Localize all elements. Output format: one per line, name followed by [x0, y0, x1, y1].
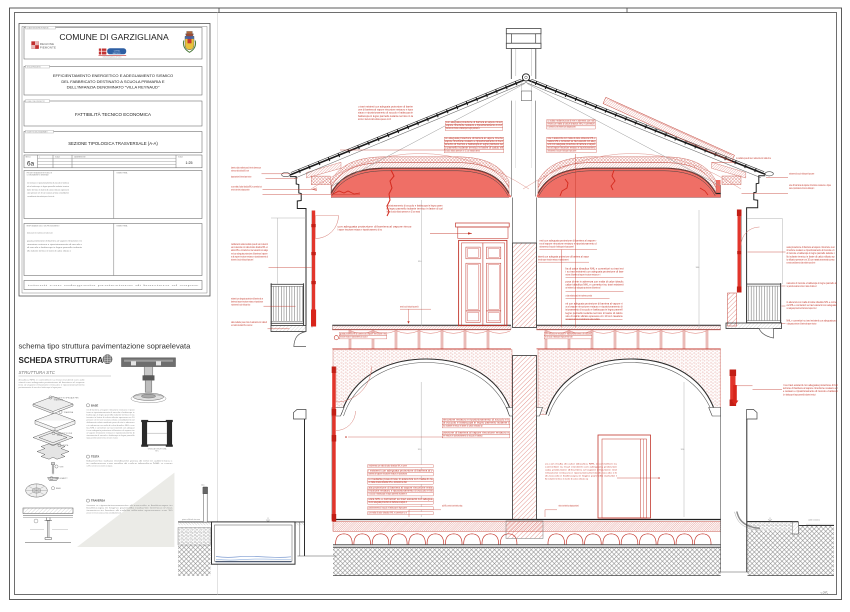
svg-text:namento di zoccolo e battiscop: namento di zoccolo e battiscopa in legno…: [787, 282, 838, 285]
svg-text:otezione di barriera al vapore: otezione di barriera al vapore rimozione…: [443, 432, 510, 435]
svg-text:ne restauro e riposizionamento: ne restauro e riposizionamento di zoccol…: [27, 182, 69, 185]
svg-text:con adeguata protezione di bar: con adeguata protezione di barriera al v…: [787, 307, 818, 310]
svg-text:di zoccolo e battiscopa in leg: di zoccolo e battiscopa in legno pannell…: [545, 475, 618, 478]
svg-text:nti con adeguata protezione di: nti con adeguata protezione di barriera …: [566, 303, 624, 306]
svg-text:calce idraulica NHL e connetto: calce idraulica NHL e connettori su trav…: [566, 284, 625, 287]
svg-text:di calcio silicato spessore cm: di calcio silicato spessore cm 10 con ra…: [445, 149, 480, 152]
svg-text:ca NHL e connettori su travi e: ca NHL e connettori su travi esistenti c…: [787, 304, 838, 307]
svg-text:DEL FABBRICATO DESTINATO: DEL FABBRICATO DESTINATO A SCUOLA PRIMAR…: [61, 79, 165, 84]
svg-text:a con malta di calce idraulica: a con malta di calce idraulica NHL e con…: [231, 324, 253, 327]
svg-text:aulica NHL e connettori su tra: aulica NHL e connettori su travi esisten…: [442, 505, 463, 508]
svg-text:cotile esterno: cotile esterno: [808, 518, 821, 521]
svg-text:ra al vapore rimozione restaur: ra al vapore rimozione restauro e riposi…: [231, 255, 269, 258]
svg-text:rimozione restauro e riposizio: rimozione restauro e riposizionamento di…: [27, 243, 82, 246]
svg-text:cato spessore cm 10 con rasatu: cato spessore cm 10 con rasatura armata …: [27, 192, 69, 195]
svg-text:ezione di barriera al vapore r: ezione di barriera al vapore rimozione r…: [566, 274, 601, 277]
svg-text:posizionamento di zoccolo e ba: posizionamento di zoccolo e battiscopa i…: [387, 205, 444, 208]
svg-text:NHL e connettori su travi esis: NHL e connettori su travi esistenti con …: [787, 320, 838, 323]
svg-text:i zoccolo e battiscopa in legn: i zoccolo e battiscopa in legno pannello…: [369, 493, 408, 496]
svg-text:con adeguata protezione di bar: con adeguata protezione di barriera al v…: [338, 226, 413, 229]
svg-text:renza con malta di calce idrau: renza con malta di calce idraulica NHL e…: [548, 123, 595, 126]
svg-text:a consolidamento solaio median: a consolidamento solaio mediante posa di…: [27, 195, 54, 198]
svg-text:istenti con adeguata protezion: istenti con adeguata protezione di barri…: [538, 256, 589, 259]
svg-text:SCHEDA STRUTTURA: SCHEDA STRUTTURA: [19, 356, 104, 365]
svg-text:lta di calce idraulica NHL e c: lta di calce idraulica NHL e connettori …: [566, 268, 625, 271]
svg-text:DELL'INFANZIA DENOMINATO "VILL: DELL'INFANZIA DENOMINATO "VILLA REYNAUD": [67, 85, 160, 90]
svg-text:ata protezione di barriera al: ata protezione di barriera al vapore rim…: [369, 487, 434, 490]
svg-text:nto di zoccolo e battiscopa in: nto di zoccolo e battiscopa in legno pan…: [545, 336, 573, 339]
svg-text:namento di zoccolo e battiscop: namento di zoccolo e battiscopa in legno…: [400, 306, 419, 309]
svg-text:BASE: BASE: [91, 403, 98, 407]
svg-text:ore rimozione restauro e ripos: ore rimozione restauro e riposizionament…: [545, 333, 592, 336]
svg-text:rimozione restauro e riposizio: rimozione restauro e riposizionamento di…: [545, 472, 618, 475]
svg-text:damento solaio mediante posa d: damento solaio mediante posa di rete in …: [231, 167, 261, 170]
svg-text:EFFICIENTAMENTO ENERGETICO E: EFFICIENTAMENTO ENERGETICO E ADEGUAMENTO…: [53, 73, 173, 78]
svg-text:termico in lastre di calcio si: termico in lastre di calcio silicato spe…: [87, 509, 173, 512]
svg-text:BASE: BASE: [56, 487, 62, 490]
svg-text:e in aderenza con malta di cal: e in aderenza con malta di calce idrauli…: [87, 424, 135, 427]
svg-text:vapore rimozione restauro e ri: vapore rimozione restauro e riposizionam…: [445, 140, 504, 143]
svg-text:barriera al vapore rimozione r: barriera al vapore rimozione restauro e …: [369, 473, 408, 476]
svg-text:posa di rete in aderenza con m: posa di rete in aderenza con malta di ca…: [566, 281, 625, 284]
svg-text:ete in aderenza con malta di c: ete in aderenza con malta di calce idrau…: [231, 246, 269, 249]
svg-text:con malta di calce idraulica N: con malta di calce idraulica NHL e conne…: [369, 512, 408, 515]
svg-text:n aderenza con malta di calce: n aderenza con malta di calce idraulica …: [231, 170, 249, 173]
svg-text:tenti con adeguata protezione: tenti con adeguata protezione di barrier…: [548, 143, 597, 146]
svg-text:ra al vapore rimozione restaur: ra al vapore rimozione restauro e riposi…: [540, 243, 598, 246]
svg-text:guata protezione di barriera a: guata protezione di barriera al vapore r…: [340, 333, 387, 336]
svg-text:METROP.: METROP.: [113, 53, 121, 55]
svg-text:one di barriera al vapore rimo: one di barriera al vapore rimozione rest…: [358, 109, 414, 112]
svg-text:rete in aderenza con malta di: rete in aderenza con malta di calce idra…: [548, 137, 597, 140]
svg-text:COMMITTENTE/PROPONENTE: COMMITTENTE/PROPONENTE: [27, 27, 49, 29]
svg-text:6a: 6a: [27, 161, 35, 168]
svg-text:stre di calcio silicato spesso: stre di calcio silicato spessore cm 10 c…: [566, 315, 624, 318]
svg-text:on malta di calce idraulica NH: on malta di calce idraulica NHL e connet…: [369, 481, 408, 484]
svg-text:LIVELLO DEL PROGETTO: LIVELLO DEL PROGETTO: [27, 101, 46, 103]
svg-text:piano ufficiale terreno: piano ufficiale terreno: [182, 518, 200, 521]
svg-text:i esistenti con adeguata prote: i esistenti con adeguata protezione di b…: [369, 470, 434, 473]
svg-text:istenti con adeguata protezion: istenti con adeguata protezione di barri…: [28, 284, 201, 287]
svg-text:pessore cm 10 con rasatura arm: pessore cm 10 con rasatura armata consol…: [87, 512, 122, 515]
svg-text:posizionamento di zoccolo e ba: posizionamento di zoccolo e battiscopa i…: [369, 507, 408, 510]
svg-text:ulica NHL e connettori su trav: ulica NHL e connettori su travi esistent…: [369, 498, 434, 501]
svg-text:io silicato spessore cm 10 con: io silicato spessore cm 10 con rasatura …: [787, 258, 836, 261]
svg-text:a al vapore rimozione restauro: a al vapore rimozione restauro e riposiz…: [566, 306, 624, 309]
svg-text:ne di barriera al vapore rimoz: ne di barriera al vapore rimozione resta…: [87, 409, 136, 412]
svg-text:izionamento di zoccolo e batti: izionamento di zoccolo e battiscopa in l…: [566, 309, 624, 312]
svg-text:o pannello isolante termico in: o pannello isolante termico in lastre di…: [445, 146, 504, 149]
svg-text:di zoccolo e battiscopa in leg: di zoccolo e battiscopa in legno pannell…: [787, 252, 835, 255]
svg-text:enti con adeguata protezione d: enti con adeguata protezione di barriera…: [540, 240, 597, 243]
svg-text:nsolidamento solaio mediante p: nsolidamento solaio mediante posa di ret…: [231, 243, 269, 246]
svg-text:in legno pannello isolante ter: in legno pannello isolante termico in la…: [387, 208, 444, 211]
svg-text:battiscopa in legno pannello i: battiscopa in legno pannello isolante te…: [358, 115, 414, 118]
svg-text:raulica NHL e connettori su tr: raulica NHL e connettori su travi esiste…: [548, 140, 597, 143]
svg-text:u travi esistenti con adeguata: u travi esistenti con adeguata protezion…: [358, 106, 413, 109]
svg-text:osizionamento di zoccolo e bat: osizionamento di zoccolo e battiscopa in…: [789, 173, 815, 176]
svg-text:con adeguata protezione di bar: con adeguata protezione di barriera al v…: [446, 121, 503, 124]
svg-text:schema tipo struttura paviment: schema tipo struttura pavimentazione sop…: [19, 342, 192, 351]
svg-text:posizionamento di zoccolo e ba: posizionamento di zoccolo e battiscopa i…: [19, 386, 62, 389]
svg-text:lante termico in lastre di cal: lante termico in lastre di calcio silica…: [27, 188, 69, 191]
svg-text:to solaio mediante posa di ret: to solaio mediante posa di rete in adere…: [548, 120, 595, 123]
svg-text:FATTIBILITÀ TECNICO ECONOMICA: FATTIBILITÀ TECNICO ECONOMICA: [75, 111, 151, 117]
svg-text:legno pannello isolante termic: legno pannello isolante termico in lastr…: [87, 437, 118, 440]
svg-text:olo e battiscopa in legno pann: olo e battiscopa in legno pannello isola…: [27, 185, 69, 188]
svg-text:osizionamento di zoccolo e bat: osizionamento di zoccolo e battiscopa in…: [548, 149, 577, 152]
svg-text:n adeguata protezione di barri: n adeguata protezione di barriera al vap…: [787, 323, 817, 326]
svg-text:e connettori su travi esistent: e connettori su travi esistenti con adeg…: [548, 126, 577, 129]
svg-text:TESTA: TESTA: [57, 434, 63, 437]
svg-text:imozione restauro e riposizion: imozione restauro e riposizionamento di …: [369, 490, 434, 493]
svg-text:TRAVERSA: TRAVERSA: [54, 399, 64, 402]
svg-text:ne restauro e riposizionamento: ne restauro e riposizionamento di zoccol…: [443, 435, 483, 438]
svg-text:1:25: 1:25: [186, 161, 193, 165]
svg-text:namento di zoccolo e battiscop: namento di zoccolo e battiscopa in legno…: [446, 127, 480, 130]
svg-text:ello isolante termico in lastr: ello isolante termico in lastre di calci…: [27, 249, 71, 252]
svg-text:stauro e riposizionamento di z: stauro e riposizionamento di zoccolo e b…: [789, 187, 815, 190]
svg-text:adeguata protezione di barrier: adeguata protezione di barriera al vapor…: [231, 176, 252, 179]
svg-text:l vapore rimozione restauro e: l vapore rimozione restauro e riposizion…: [338, 229, 383, 232]
svg-text:enti con adeguata protezione d: enti con adeguata protezione di barriera…: [231, 252, 268, 255]
svg-text:olaio mediante posa di rete in: olaio mediante posa di rete in aderenza …: [231, 321, 267, 324]
svg-text:llo isolante termico in lastre: llo isolante termico in lastre di calcio…: [787, 255, 836, 258]
svg-text:~25: ~25: [820, 591, 828, 596]
svg-text:e riposizionamento di zoccolo: e riposizionamento di zoccolo e battisco…: [231, 304, 250, 307]
svg-text:termico in lastre di calcio si: termico in lastre di calcio silicato spe…: [358, 118, 391, 121]
svg-text:llo isolante termico in lastre: llo isolante termico in lastre di calcio…: [443, 425, 483, 428]
svg-text:draulica NHL e connettori su t: draulica NHL e connettori su travi esist…: [19, 379, 85, 382]
svg-text:BASE GRAVITY: BASE GRAVITY: [55, 477, 69, 480]
svg-text:amento di zoccolo e battiscopa: amento di zoccolo e battiscopa in legno …: [445, 143, 504, 146]
svg-text:di zoccolo e battiscopa in leg: di zoccolo e battiscopa in legno pannell…: [27, 246, 82, 249]
svg-text:SEZIONE TIPOLOGICA TRASVERSALE: SEZIONE TIPOLOGICA TRASVERSALE (A-A): [68, 141, 158, 146]
svg-text:olidamento solaio mediante pos: olidamento solaio mediante posa di rete …: [87, 421, 135, 424]
svg-text:guata protezione di barriera a: guata protezione di barriera al vapore r…: [27, 240, 82, 243]
svg-text:barriera al vapore rimozione r: barriera al vapore rimozione restauro e …: [231, 301, 263, 304]
svg-text:esistenti con adeguata protezi: esistenti con adeguata protezione di bar…: [231, 298, 263, 301]
svg-text:legno pannello isolante termic: legno pannello isolante termico in lastr…: [566, 312, 624, 315]
svg-text:e restauro e riposizionamento: e restauro e riposizionamento di zoccolo…: [783, 390, 839, 393]
svg-text:a con malta di calce idraulica: a con malta di calce idraulica NHL e con…: [231, 186, 262, 189]
svg-text:rimozione restauro e riposizio: rimozione restauro e riposizionamento di…: [340, 336, 368, 339]
svg-text:tezione di barriera al vapore: tezione di barriera al vapore rimozione …: [783, 387, 838, 390]
svg-text:lastre di calcio silicato spes: lastre di calcio silicato spessore cm 10…: [387, 211, 421, 214]
svg-text:uata protezione di barriera al: uata protezione di barriera al vapore ri…: [545, 469, 618, 472]
svg-text:on adeguata protezione di barr: on adeguata protezione di barriera al va…: [445, 137, 504, 140]
svg-text:o solaio mediante posa di rete: o solaio mediante posa di rete in aderen…: [566, 295, 593, 298]
svg-text:vapore rimozione restauro e ri: vapore rimozione restauro e riposizionam…: [446, 124, 503, 127]
svg-text:in aderenza con malta di calce: in aderenza con malta di calce idraulica…: [369, 465, 408, 468]
svg-text:ica NHL e connettori su travi: ica NHL e connettori su travi esistenti …: [87, 465, 113, 468]
svg-text:sizionamento di zoccolo e batt: sizionamento di zoccolo e battiscopa in …: [231, 259, 253, 262]
svg-text:aulica NHL e connettori su tra: aulica NHL e connettori su travi esisten…: [231, 249, 269, 252]
svg-text:tauro e riposizionamento di zo: tauro e riposizionamento di zoccolo e ba…: [87, 504, 173, 507]
svg-text:termico in lastre di calcio si: termico in lastre di calcio silicato spe…: [87, 416, 135, 419]
svg-text:STRUTTURA STC: STRUTTURA STC: [19, 370, 56, 375]
svg-text:connettori su travi esistenti: connettori su travi esistenti con adegua…: [545, 466, 618, 469]
svg-text:TRAVERSA: TRAVERSA: [64, 411, 74, 414]
svg-text:io mediante posa di rete in ad: io mediante posa di rete in aderenza con…: [736, 157, 771, 160]
svg-text:llo isolante termico in lastre: llo isolante termico in lastre di calcio…: [545, 478, 589, 481]
svg-text:za con malta di calce idraulic: za con malta di calce idraulica NHL e co…: [545, 463, 618, 466]
svg-text:uata protezione di barriera al: uata protezione di barriera al vapore ri…: [787, 246, 835, 249]
svg-text:nti con adeguata protezione di: nti con adeguata protezione di barriera …: [369, 501, 408, 504]
svg-text:no pannello isolante termico i: no pannello isolante termico in lastre d…: [787, 285, 817, 288]
svg-text:rimozione restauro e riposizio: rimozione restauro e riposizionamento di…: [443, 419, 510, 422]
svg-text:al vapore rimozione restauro e: al vapore rimozione restauro e riposizio…: [87, 431, 136, 434]
svg-text:diante posa di rete in aderenz: diante posa di rete in aderenza con malt…: [27, 232, 53, 235]
svg-text:lo e battiscopa in legno panne: lo e battiscopa in legno pannello isolan…: [783, 393, 816, 396]
svg-text:a armata consolidamento solaio: a armata consolidamento solaio mediante …: [787, 262, 816, 265]
svg-text:riera al vapore rimozione rest: riera al vapore rimozione restauro e rip…: [538, 259, 569, 262]
svg-text:onnettori su travi esistenti c: onnettori su travi esistenti con adeguat…: [231, 189, 250, 192]
svg-text:TESTA: TESTA: [63, 444, 69, 447]
svg-text:in aderenza con malta di calce: in aderenza con malta di calce idraulica…: [787, 301, 838, 304]
svg-text:era al vapore rimozione restau: era al vapore rimozione restauro e ripos…: [548, 146, 597, 149]
svg-text:ri su travi esistenti con adeg: ri su travi esistenti con adeguata prote…: [783, 384, 838, 387]
svg-text:tubo: tubo: [201, 483, 205, 486]
svg-text:stauro e riposizionamento di z: stauro e riposizionamento di zoccolo e b…: [358, 112, 414, 115]
svg-text:rimozione restauro e riposizio: rimozione restauro e riposizionamento di…: [787, 249, 836, 252]
svg-text:zionamento di zoccolo e battis: zionamento di zoccolo e battiscopa in le…: [87, 434, 135, 437]
svg-text:i su travi esistenti con adegu: i su travi esistenti con adeguata protez…: [566, 271, 624, 274]
svg-text:COMUNE DI GARZIGLIANA: COMUNE DI GARZIGLIANA: [59, 32, 169, 42]
svg-text:PIEMONTE: PIEMONTE: [40, 45, 56, 49]
svg-text:lidamento solaio mediante posa: lidamento solaio mediante posa di rete i…: [87, 460, 173, 463]
svg-text:nettori su travi esistenti con: nettori su travi esistenti con adeguata …: [559, 505, 580, 508]
svg-text:TRAVERSA: TRAVERSA: [91, 499, 105, 503]
svg-text:di zoccolo e battiscopa in leg: di zoccolo e battiscopa in legno pannell…: [443, 422, 509, 425]
svg-text:io mediante posa di rete in ad: io mediante posa di rete in aderenza con…: [369, 478, 434, 481]
svg-text:avi esistenti con adeguata pro: avi esistenti con adeguata protezione di…: [566, 287, 601, 290]
svg-text:sizionamento di zoccolo e batt: sizionamento di zoccolo e battiscopa in …: [540, 246, 575, 249]
svg-text:TESTA: TESTA: [91, 455, 99, 459]
svg-text:TITOLO PROGETTO: TITOLO PROGETTO: [27, 66, 42, 68]
svg-text:one di barriera al vapore rimo: one di barriera al vapore rimozione rest…: [789, 184, 832, 187]
